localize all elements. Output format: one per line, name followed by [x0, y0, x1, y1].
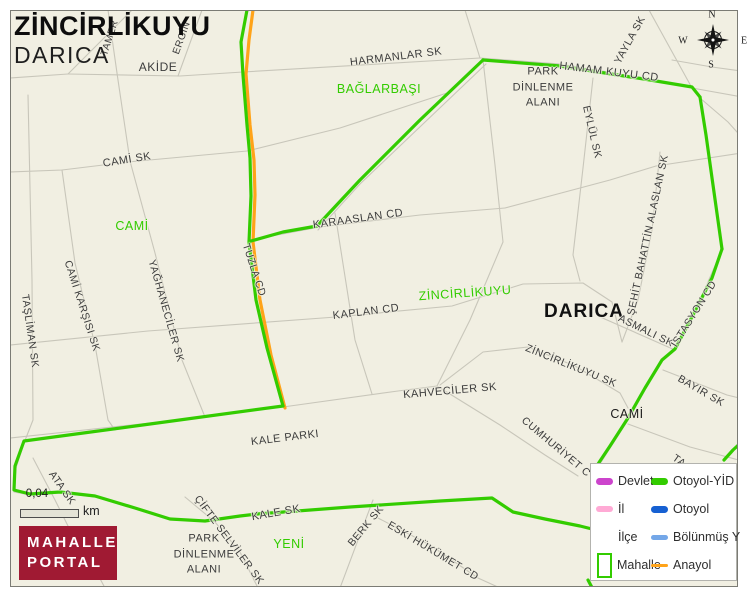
page-title: ZİNCİRLİKUYU [14, 12, 211, 42]
legend-swatch [596, 506, 613, 512]
legend-swatch [651, 535, 668, 540]
legend-swatch [651, 506, 668, 513]
legend-label: İlçe [618, 530, 637, 544]
legend-label: Anayol [673, 558, 711, 572]
compass-west-label: W [678, 36, 687, 47]
legend-label: Devlet [618, 474, 653, 488]
compass-north-label: N [708, 10, 715, 21]
legend-item: Otoyol-YİD [651, 467, 740, 495]
legend-label: Otoyol-YİD [673, 474, 734, 488]
legend-label: Otoyol [673, 502, 709, 516]
scale-bar [20, 509, 79, 518]
logo-line-2: PORTAL [27, 553, 117, 573]
title-block: ZİNCİRLİKUYU DARICA [14, 12, 211, 68]
compass-east-label: E [741, 36, 747, 47]
logo-line-1: MAHALLE [27, 533, 117, 553]
legend-item: Anayol [651, 551, 740, 579]
legend: DevletİlİlçeMahalle Otoyol-YİDOtoyolBölü… [590, 463, 737, 581]
scale-value: 0,04 [14, 488, 60, 500]
legend-swatch [651, 478, 668, 485]
legend-label: Bölünmüş Y [673, 530, 740, 544]
compass-rose-icon [697, 24, 729, 56]
compass-south-label: S [708, 60, 714, 71]
mahalle-portal-logo: MAHALLE PORTAL [19, 526, 117, 580]
legend-column-2: Otoyol-YİDOtoyolBölünmüş YAnayol [651, 467, 740, 579]
legend-swatch [596, 478, 613, 485]
legend-swatch [597, 553, 612, 578]
scale-unit: km [83, 504, 100, 518]
legend-swatch [651, 564, 668, 567]
legend-item: Otoyol [651, 495, 740, 523]
page-subtitle: DARICA [14, 42, 211, 68]
map-page: TAMERERGİNAKİDEHARMANLAR SKHAMAM KUYU CD… [0, 0, 748, 598]
legend-label: İl [618, 502, 624, 516]
legend-item: Bölünmüş Y [651, 523, 740, 551]
